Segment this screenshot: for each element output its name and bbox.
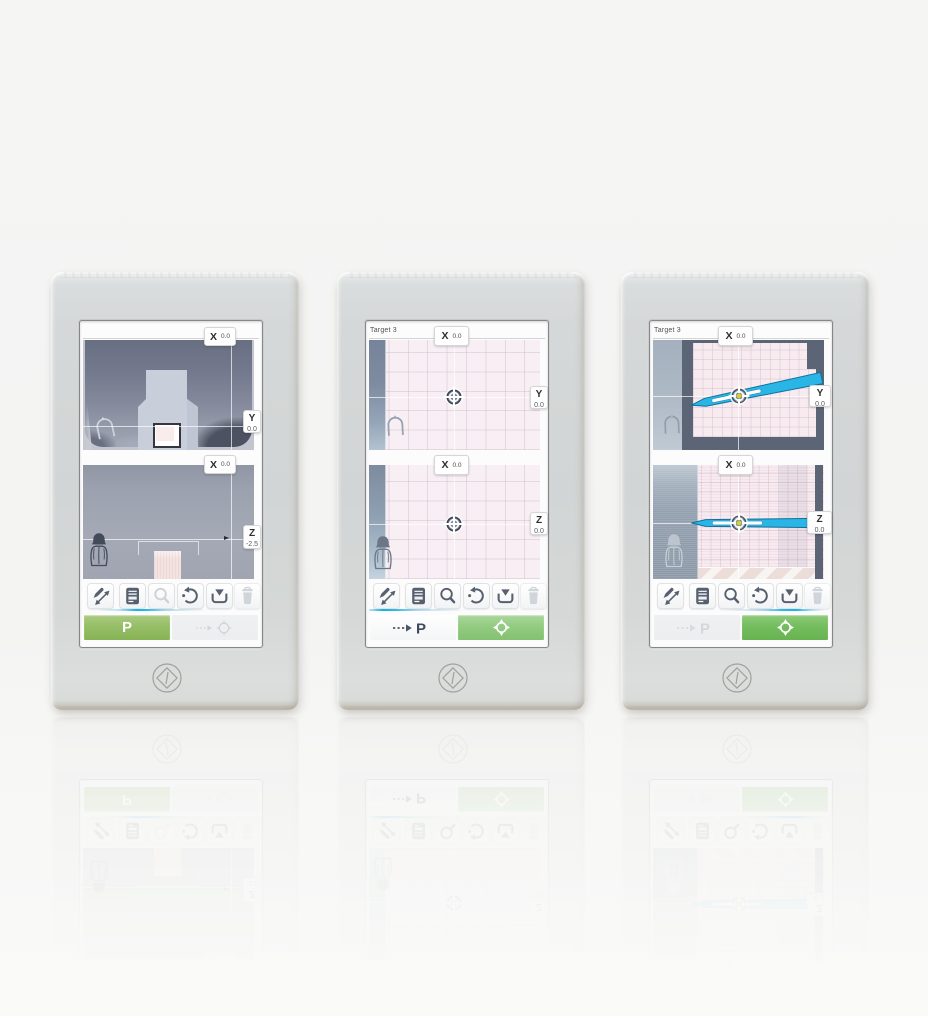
svg-text:P: P (700, 620, 710, 637)
svg-text:P: P (416, 620, 426, 637)
